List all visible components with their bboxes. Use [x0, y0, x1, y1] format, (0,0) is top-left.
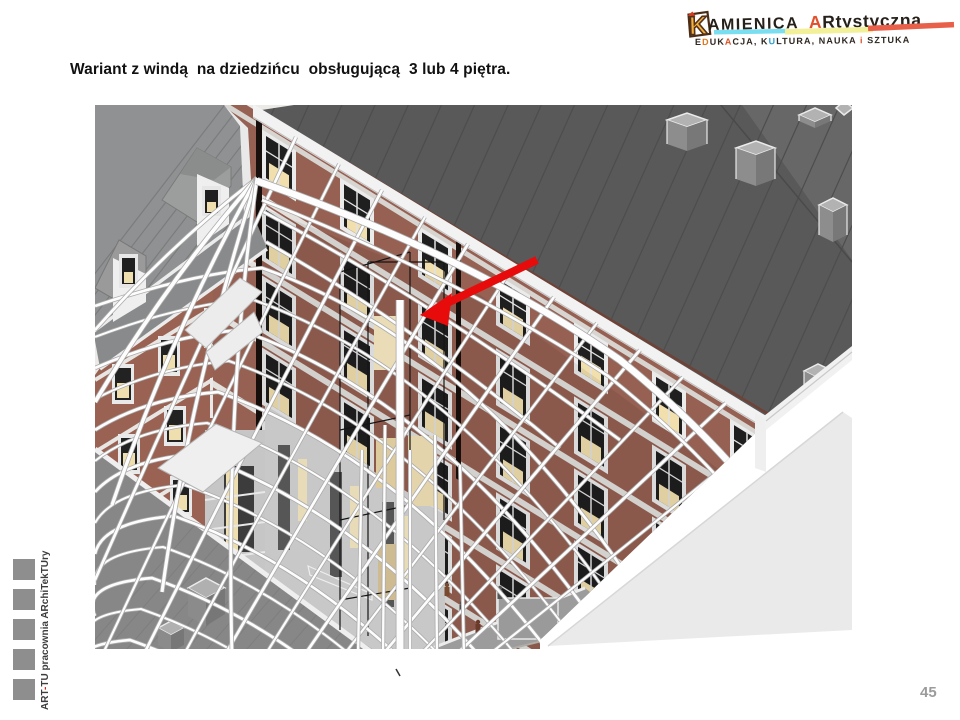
svg-text:EDUKACJA, KULTURA, NAUKA i SZT: EDUKACJA, KULTURA, NAUKA i SZTUKA	[695, 35, 910, 47]
